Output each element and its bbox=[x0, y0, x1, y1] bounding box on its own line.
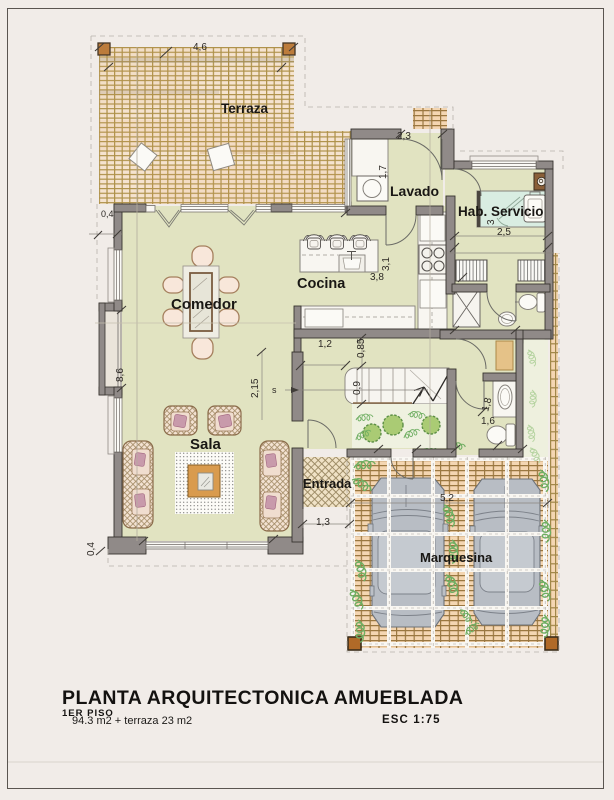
svg-text:Entrada: Entrada bbox=[303, 476, 352, 491]
svg-text:Hab. Servicio: Hab. Servicio bbox=[458, 204, 544, 219]
svg-text:2,5: 2,5 bbox=[497, 227, 511, 238]
svg-text:5,2: 5,2 bbox=[440, 493, 454, 504]
svg-text:0,4: 0,4 bbox=[86, 542, 97, 556]
svg-text:1,6: 1,6 bbox=[481, 416, 495, 427]
svg-text:s: s bbox=[272, 385, 277, 395]
svg-text:Marquesina: Marquesina bbox=[420, 550, 493, 565]
svg-text:PLANTA ARQUITECTONICA AMUEBLAD: PLANTA ARQUITECTONICA AMUEBLADA bbox=[62, 687, 463, 709]
svg-text:0,9: 0,9 bbox=[352, 381, 363, 395]
svg-text:8,6: 8,6 bbox=[115, 368, 126, 382]
svg-text:3,8: 3,8 bbox=[370, 272, 384, 283]
svg-text:Comedor: Comedor bbox=[171, 296, 237, 313]
svg-text:ESC 1:75: ESC 1:75 bbox=[382, 714, 441, 726]
svg-text:3: 3 bbox=[486, 219, 497, 225]
svg-text:0,85: 0,85 bbox=[356, 338, 367, 358]
svg-text:1,2: 1,2 bbox=[318, 339, 332, 350]
svg-text:Lavado: Lavado bbox=[390, 183, 439, 199]
svg-text:4,6: 4,6 bbox=[193, 42, 207, 53]
svg-text:Cocina: Cocina bbox=[297, 276, 346, 292]
svg-text:1,3: 1,3 bbox=[316, 517, 330, 528]
svg-text:94.3 m2 + terraza 23 m2: 94.3 m2 + terraza 23 m2 bbox=[72, 715, 192, 727]
svg-text:3,1: 3,1 bbox=[381, 257, 392, 271]
svg-text:1,7: 1,7 bbox=[378, 165, 389, 179]
svg-text:2,3: 2,3 bbox=[397, 131, 411, 142]
svg-text:0,4: 0,4 bbox=[101, 209, 114, 219]
svg-text:Sala: Sala bbox=[190, 436, 222, 453]
svg-text:2,15: 2,15 bbox=[250, 378, 261, 398]
svg-text:Terraza: Terraza bbox=[221, 101, 269, 116]
